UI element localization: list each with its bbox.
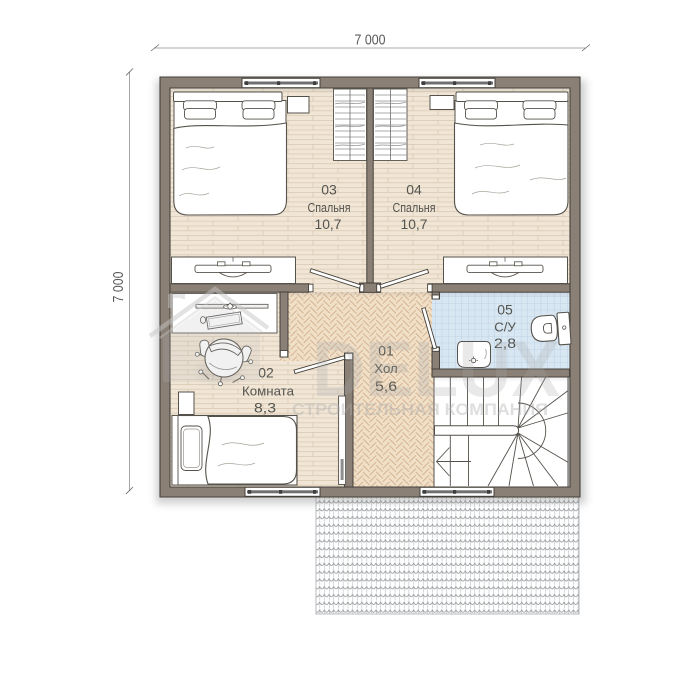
svg-text:7 000: 7 000: [111, 272, 127, 303]
svg-text:Комната: Комната: [242, 384, 295, 399]
svg-text:DELUX: DELUX: [312, 324, 560, 413]
svg-text:СТРОИТЕЛЬНАЯ КОМПАНИЯ: СТРОИТЕЛЬНАЯ КОМПАНИЯ: [292, 401, 548, 419]
svg-text:02: 02: [258, 365, 274, 381]
svg-text:04: 04: [406, 182, 422, 198]
svg-text:05: 05: [497, 302, 513, 318]
svg-text:10,7: 10,7: [401, 216, 428, 232]
svg-text:10,7: 10,7: [315, 216, 342, 232]
svg-text:8,3: 8,3: [254, 400, 276, 416]
svg-text:03: 03: [321, 182, 337, 198]
svg-text:7 000: 7 000: [355, 33, 386, 49]
svg-text:Спальня: Спальня: [393, 200, 436, 215]
svg-text:Спальня: Спальня: [308, 200, 351, 215]
